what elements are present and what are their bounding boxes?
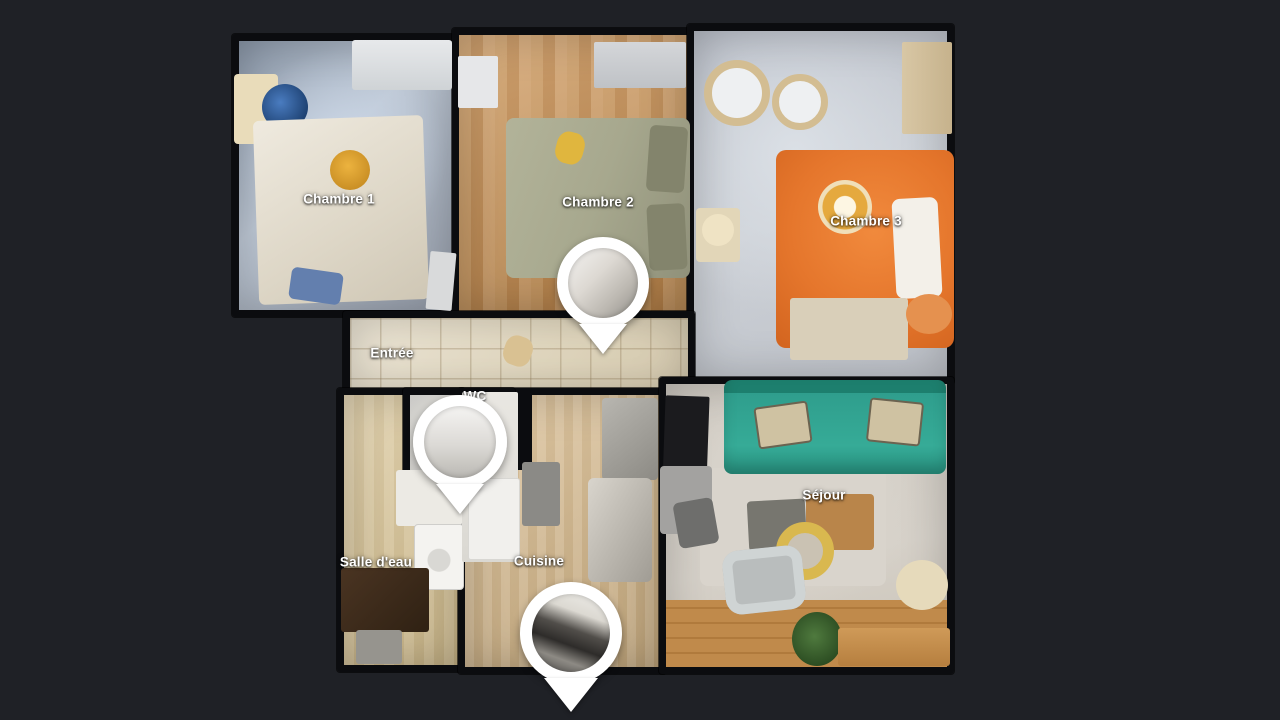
round-chair xyxy=(772,74,828,130)
lamp xyxy=(702,214,734,246)
wardrobe xyxy=(594,42,686,88)
shower-tray xyxy=(356,630,402,664)
room-label-chambre-3: Chambre 3 xyxy=(830,214,902,229)
shower-mat xyxy=(341,568,429,632)
pillow xyxy=(646,203,687,271)
pin-pointer-icon xyxy=(579,324,627,354)
plant xyxy=(792,612,842,666)
round-chair xyxy=(704,60,770,126)
side-chair xyxy=(896,560,948,610)
pouf xyxy=(906,294,952,334)
door-panel xyxy=(426,251,457,311)
kitchen-island xyxy=(602,398,658,480)
cabinet xyxy=(458,56,498,108)
pillow xyxy=(646,125,689,193)
wardrobe xyxy=(902,42,952,134)
cushion xyxy=(866,397,924,446)
pano-preview xyxy=(520,582,622,684)
pin-pointer-icon xyxy=(544,678,598,712)
wardrobe xyxy=(352,40,452,90)
room-label-entree: Entrée xyxy=(370,346,413,361)
pano-marker-cuisine[interactable] xyxy=(520,582,622,684)
counter-appliance xyxy=(522,462,560,526)
towel xyxy=(891,197,942,299)
room-label-sejour: Séjour xyxy=(802,488,845,503)
cushion xyxy=(753,400,812,449)
pano-marker-chambre-2[interactable] xyxy=(557,237,649,329)
pano-preview xyxy=(413,395,507,489)
room-label-chambre-1: Chambre 1 xyxy=(303,192,375,207)
pin-pointer-icon xyxy=(436,484,484,514)
virtual-tour-viewport: Chambre 1 Chambre 2 Chambre 3 Entrée WC … xyxy=(0,0,1280,720)
pano-preview xyxy=(557,237,649,329)
room-label-salle-deau: Salle d'eau xyxy=(340,555,412,570)
rug xyxy=(790,298,908,360)
kitchen-counter xyxy=(588,478,652,582)
bench xyxy=(838,628,950,666)
dollhouse-floor-plan[interactable]: Chambre 1 Chambre 2 Chambre 3 Entrée WC … xyxy=(0,0,1280,720)
desk-chair xyxy=(672,497,719,549)
stool xyxy=(330,150,370,190)
room-label-cuisine: Cuisine xyxy=(514,554,564,569)
pano-marker-wc[interactable] xyxy=(413,395,507,489)
armchair xyxy=(721,544,807,616)
room-label-chambre-2: Chambre 2 xyxy=(562,195,634,210)
